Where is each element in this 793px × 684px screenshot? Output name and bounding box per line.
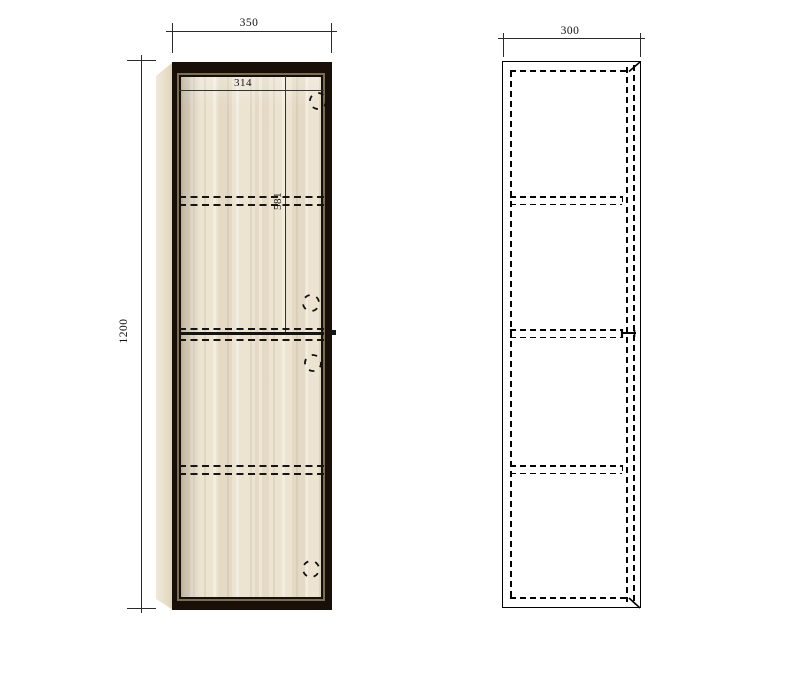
inner-width-dimension-label: 314 (223, 76, 263, 90)
side-front-frame-hidden-line-outer (633, 65, 635, 605)
upper-door-height-dimension-label: 581 (271, 186, 285, 216)
cabinet-left-side-panel (156, 62, 173, 610)
middle-divider-hidden-line-bottom (179, 339, 324, 341)
lower-shelf-hidden-line-top (179, 465, 324, 467)
cabinet-door-face (179, 75, 323, 599)
front-width-dimension-line (166, 31, 337, 32)
side-view-outline (502, 61, 641, 608)
middle-divider-hidden-line-top (179, 328, 324, 330)
side-upper-shelf-end-cap (622, 196, 624, 205)
side-depth-extension-line-left (503, 33, 504, 57)
upper-shelf-hidden-line-bottom (179, 204, 324, 206)
side-depth-dimension-line (498, 38, 645, 39)
inner-width-dimension-line (179, 90, 324, 91)
drawing-canvas: 350 1200 314 581 30 (0, 0, 793, 684)
divider-edge-notch (329, 330, 336, 335)
side-front-frame-hidden-line-inner (626, 67, 628, 602)
front-width-dimension-label: 350 (229, 16, 269, 30)
door-face-shading (181, 77, 321, 597)
side-lower-shelf-end-cap (622, 465, 624, 474)
upper-shelf-hidden-line-top (179, 196, 324, 198)
side-lower-shelf-hidden-line-top (510, 465, 622, 467)
side-inner-hidden-line-bottom (510, 597, 627, 599)
door-gap-divider-line (179, 332, 324, 336)
front-height-dimension-label: 1200 (117, 311, 131, 351)
side-inner-hidden-line-left (510, 71, 512, 598)
front-height-extension-line-bottom (127, 608, 156, 609)
side-middle-divider-hidden-line-top (510, 329, 622, 331)
front-height-extension-line-top (127, 60, 156, 61)
side-upper-shelf-hidden-line-bottom (510, 204, 622, 206)
side-depth-extension-line-right (640, 33, 641, 57)
side-upper-shelf-hidden-line-top (510, 196, 622, 198)
front-width-extension-line-left (172, 23, 173, 53)
side-middle-divider-hidden-line-bottom (510, 337, 622, 339)
side-lower-shelf-hidden-line-bottom (510, 473, 622, 475)
side-depth-dimension-label: 300 (550, 24, 590, 38)
front-height-dimension-line (141, 55, 142, 613)
front-width-extension-line-right (331, 23, 332, 53)
side-inner-hidden-line-top (510, 70, 627, 72)
lower-shelf-hidden-line-bottom (179, 473, 324, 475)
